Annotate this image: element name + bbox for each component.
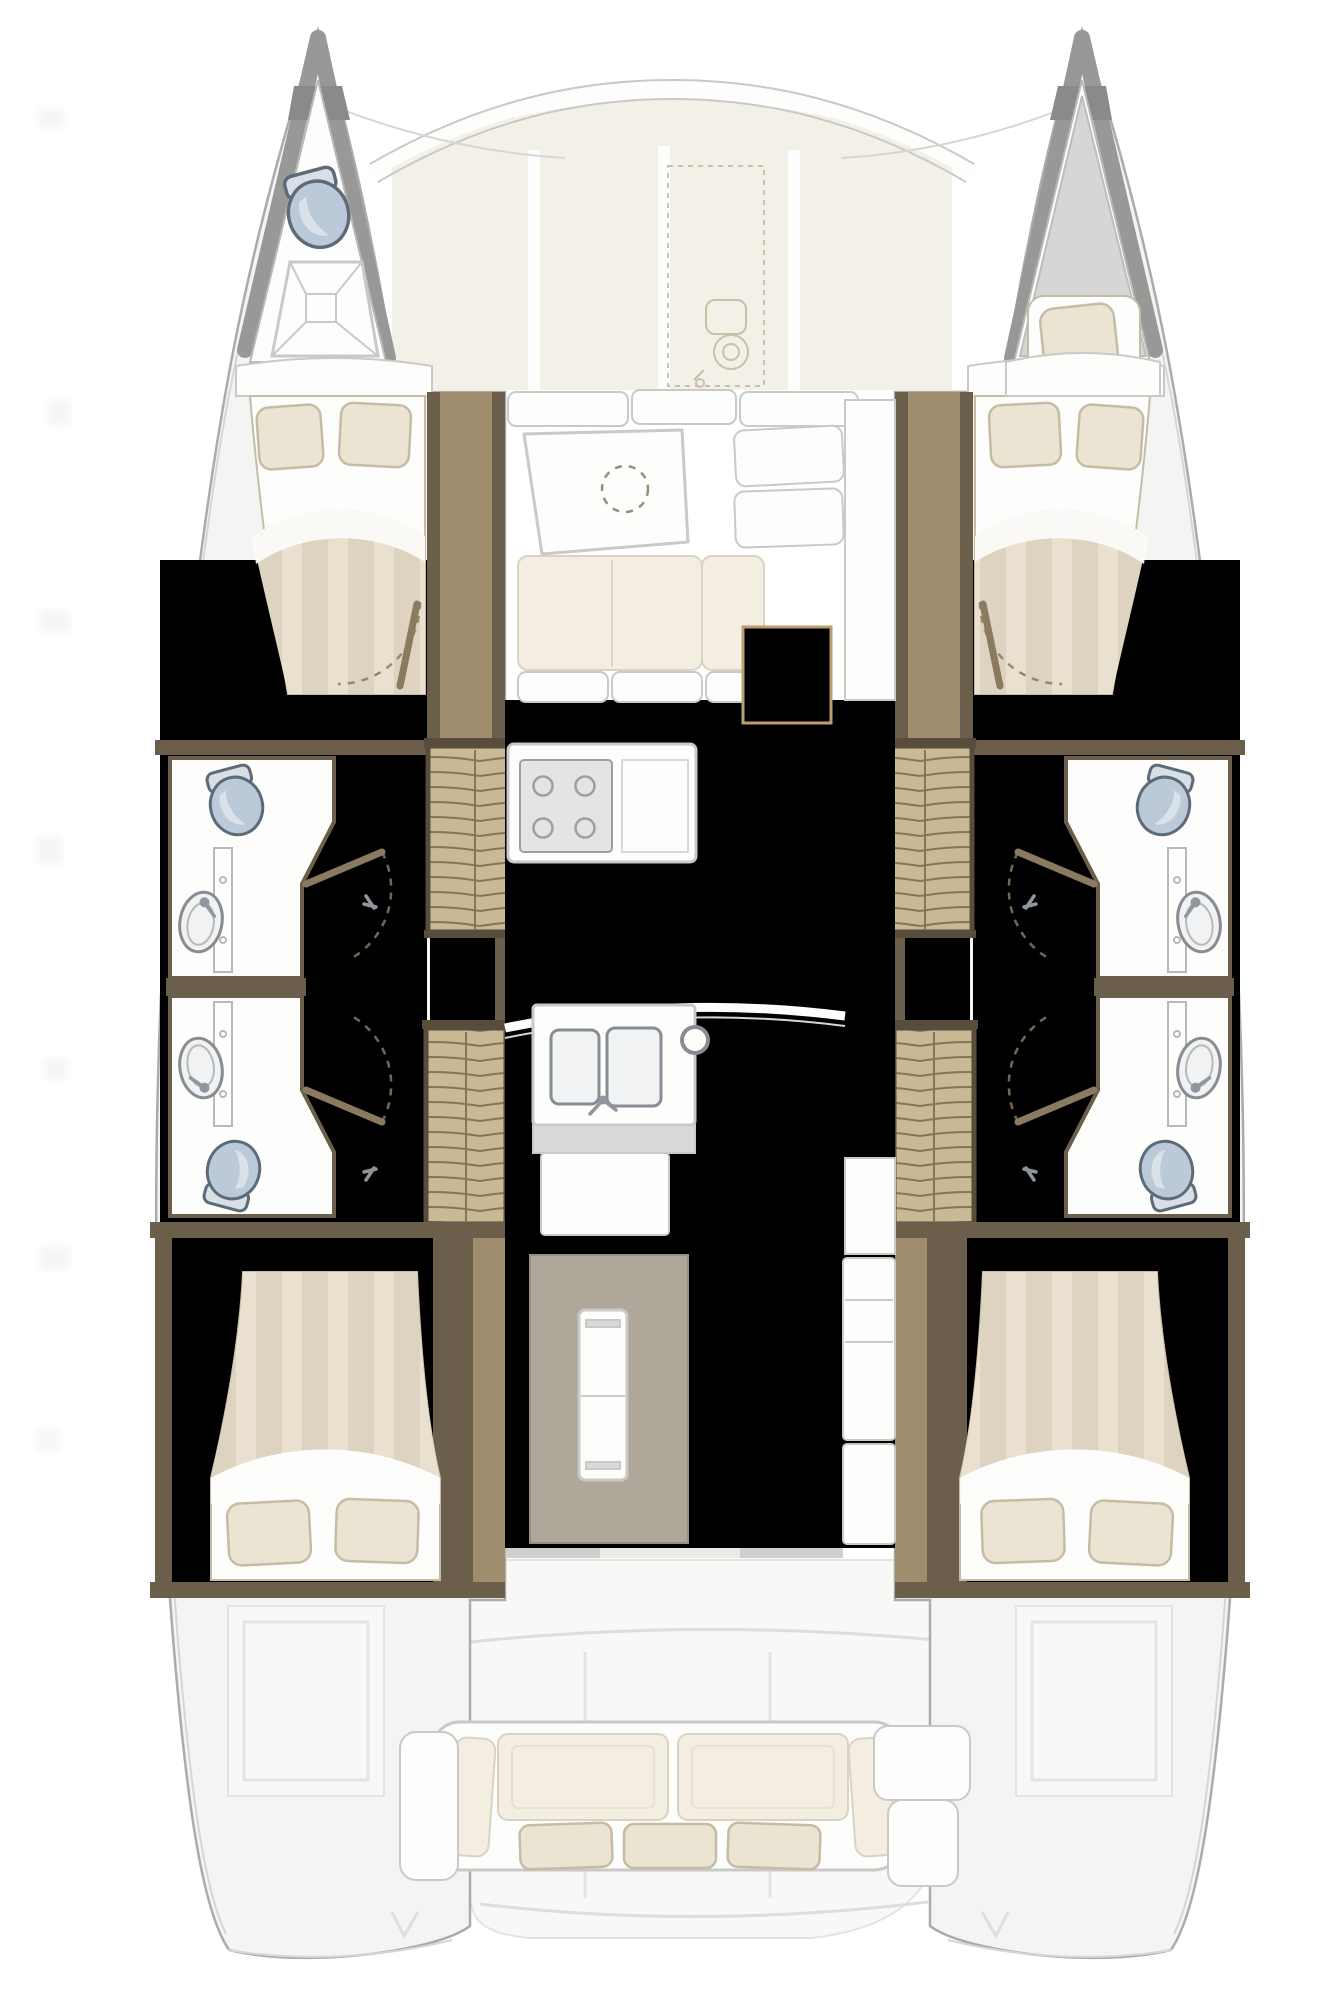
fridge-unit bbox=[530, 1255, 688, 1543]
compression-post bbox=[682, 1027, 708, 1053]
stove-top bbox=[520, 760, 612, 852]
inboard-wall-edge bbox=[492, 392, 505, 750]
galley-cabinet bbox=[541, 1153, 669, 1235]
aft-cabin bbox=[150, 1222, 505, 1598]
sink-basin bbox=[551, 1030, 599, 1104]
front-settee-backrest bbox=[740, 392, 858, 426]
shower-tray bbox=[272, 262, 378, 356]
steps-cap bbox=[422, 1020, 510, 1029]
fore-cabin-aft-wall bbox=[155, 740, 430, 755]
pillow bbox=[727, 1822, 820, 1869]
shower-drain bbox=[306, 294, 336, 322]
engine-hatch bbox=[228, 1606, 384, 1796]
cabinet bbox=[843, 1258, 895, 1440]
sink-basin bbox=[607, 1028, 661, 1106]
floor-between-steps bbox=[430, 932, 505, 1028]
pillow bbox=[256, 404, 324, 470]
cabinet bbox=[843, 1444, 895, 1544]
foredeck-panels bbox=[392, 100, 952, 390]
pillow bbox=[338, 402, 411, 468]
side-seat bbox=[734, 488, 844, 548]
settee-base bbox=[518, 672, 608, 702]
fridge-handle bbox=[586, 1462, 620, 1469]
front-settee-backrest bbox=[508, 392, 628, 426]
foredeck-panel-divider bbox=[788, 150, 800, 390]
cockpit-furniture bbox=[400, 1722, 970, 1886]
foredeck bbox=[338, 80, 1064, 390]
settee-base bbox=[612, 672, 702, 702]
saloon bbox=[505, 390, 895, 1558]
floor-plan-canvas bbox=[0, 0, 1333, 2000]
inboard-wall-edge bbox=[427, 392, 440, 750]
bathroom-divider-wall bbox=[166, 978, 306, 996]
pillow bbox=[335, 1499, 419, 1564]
aft-bed-duvet bbox=[211, 1272, 440, 1478]
pillow bbox=[519, 1822, 612, 1869]
counter-edge bbox=[533, 1125, 695, 1153]
cabinet bbox=[845, 1158, 895, 1254]
helm-seat-port bbox=[400, 1732, 458, 1880]
sliding-door-opening bbox=[600, 1548, 740, 1558]
foredeck-panel-divider bbox=[528, 150, 540, 390]
catamaran-floor-plan bbox=[0, 0, 1333, 2000]
fridge-handle bbox=[586, 1320, 620, 1327]
forepeak-step bbox=[1006, 353, 1160, 396]
settee-cushion bbox=[518, 556, 702, 670]
watermark-smudges bbox=[36, 108, 70, 1450]
galley-stove-unit bbox=[508, 744, 696, 862]
starboard-bench bbox=[845, 400, 895, 700]
front-settee-backrest bbox=[632, 390, 736, 424]
pillow bbox=[226, 1500, 311, 1566]
bow-bulkhead bbox=[236, 358, 432, 396]
pillow bbox=[624, 1824, 716, 1868]
wicker-hatch bbox=[743, 627, 831, 723]
dining-table bbox=[524, 430, 688, 554]
side-seat bbox=[734, 425, 845, 487]
